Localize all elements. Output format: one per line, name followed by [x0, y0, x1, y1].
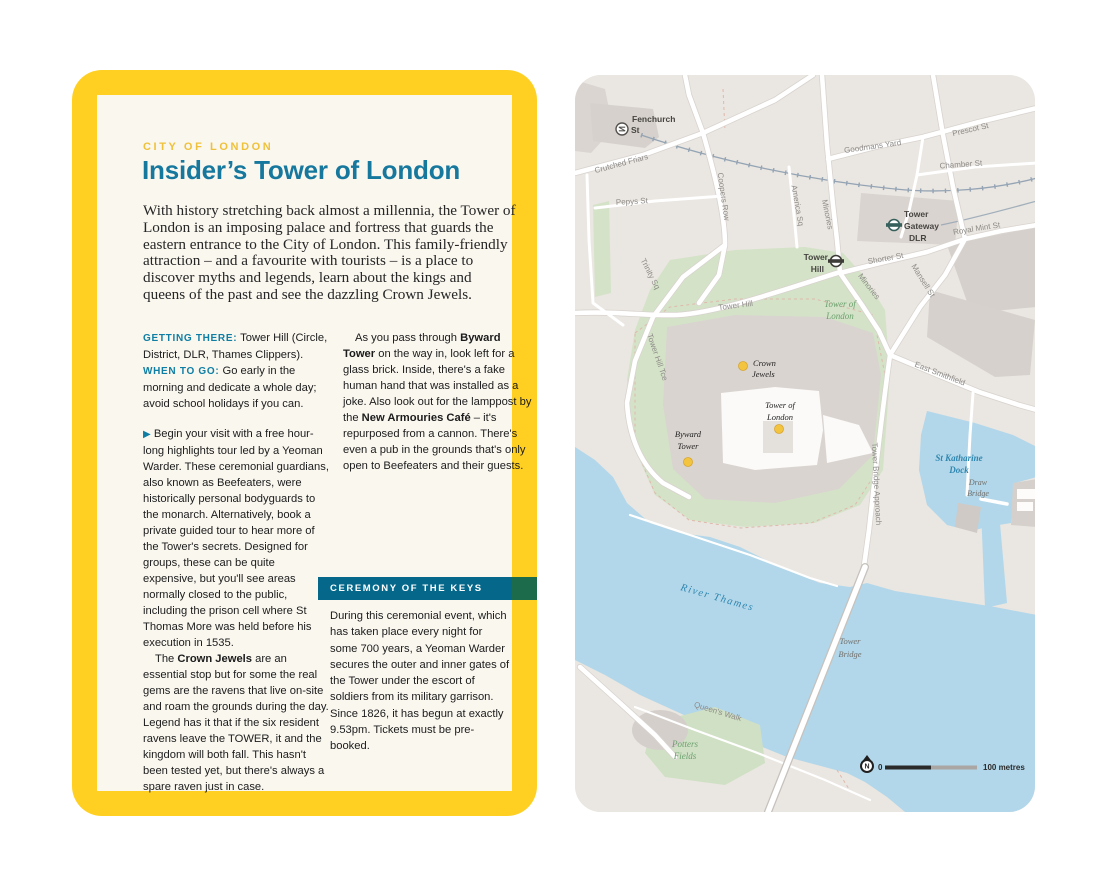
scale-zero: 0: [878, 763, 883, 772]
column-left: GETTING THERE: Tower Hill (Circle, Distr…: [143, 330, 331, 795]
page-title: Insider’s Tower of London: [142, 155, 460, 186]
page-root: CITY OF LONDON Insider’s Tower of London…: [0, 0, 1111, 884]
station-label-fenchurch-st: St: [631, 125, 640, 135]
poi-label-jewels: Jewels: [752, 369, 775, 379]
poi-dot-byward-tower: [684, 458, 693, 467]
area-label-tower-of-london-1: Tower of: [824, 299, 857, 309]
guide-card: CITY OF LONDON Insider’s Tower of London…: [72, 70, 537, 816]
pointer-arrow-icon: ▶: [143, 429, 151, 440]
north-letter: N: [864, 764, 869, 771]
station-label-tower-gateway-2: Gateway: [904, 221, 939, 231]
station-label-fenchurch: Fenchurch: [632, 114, 675, 124]
scale-distance: 100 metres: [983, 763, 1025, 772]
body-paragraph-3: As you pass through Byward Tower on the …: [343, 330, 535, 474]
ceremony-box-accent: [512, 577, 537, 600]
p2-bold: Crown Jewels: [177, 653, 252, 665]
poi-label-byward: Byward: [675, 429, 702, 439]
ceremony-box-body: During this ceremonial event, which has …: [330, 608, 510, 755]
water-label-draw-bridge: Bridge: [967, 489, 989, 498]
water-label-st-katharine: St Katharine: [935, 453, 982, 463]
tower-map: Crutched Friars Pepys St Coopers Row Tri…: [575, 75, 1035, 812]
ceremony-box-header: CEREMONY OF THE KEYS: [318, 577, 537, 600]
poi-label-tower-of: Tower of: [765, 400, 796, 410]
scale-bar-light: [931, 766, 977, 770]
station-label-tower-gateway-1: Tower: [904, 209, 929, 219]
national-rail-icon: [616, 123, 628, 135]
when-to-go-label: WHEN TO GO:: [143, 366, 219, 377]
body-paragraph-2: The Crown Jewels are an essential stop b…: [143, 651, 331, 795]
water-label-tower: Tower: [840, 636, 862, 646]
section-eyebrow: CITY OF LONDON: [143, 141, 273, 153]
poi-label-london: London: [766, 412, 793, 422]
area-label-tower-of-london-2: London: [825, 311, 854, 321]
area-label-potters: Potters: [671, 739, 698, 749]
water-label-dock: Dock: [948, 465, 969, 475]
spacer: [143, 412, 331, 426]
station-label-tower: Tower: [804, 252, 829, 262]
poi-dot-crown-jewels: [739, 362, 748, 371]
poi-dot-tower-of-london: [775, 425, 784, 434]
getting-there: GETTING THERE: Tower Hill (Circle, Distr…: [143, 330, 331, 363]
water-label-draw: Draw: [968, 478, 988, 487]
p3-bold-cafe: New Armouries Café: [362, 412, 471, 424]
station-label-tower-gateway-3: DLR: [909, 233, 926, 243]
scale-bar-dark: [885, 766, 931, 770]
p2-post: are an essential stop but for some the r…: [143, 653, 329, 793]
water-label-tower-bridge: Bridge: [838, 649, 861, 659]
column-right: As you pass through Byward Tower on the …: [343, 330, 535, 474]
body-paragraph-1: ▶ Begin your visit with a free hour-long…: [143, 426, 331, 651]
ceremony-box-title: CEREMONY OF THE KEYS: [318, 577, 512, 600]
p3-pre: As you pass through: [355, 332, 460, 344]
poi-label-tower: Tower: [678, 441, 700, 451]
area-label-fields: Fields: [673, 751, 697, 761]
p2-pre: The: [155, 653, 177, 665]
body-paragraph-1-text: Begin your visit with a free hour-long h…: [143, 428, 329, 649]
map-panel: Crutched Friars Pepys St Coopers Row Tri…: [575, 75, 1035, 812]
station-label-hill: Hill: [811, 264, 824, 274]
when-to-go: WHEN TO GO: Go early in the morning and …: [143, 363, 331, 412]
street-label-pepys-st: Pepys St: [616, 196, 649, 207]
poi-label-crown: Crown: [753, 358, 776, 368]
getting-there-label: GETTING THERE:: [143, 333, 237, 344]
intro-paragraph: With history stretching back almost a mi…: [143, 203, 517, 304]
